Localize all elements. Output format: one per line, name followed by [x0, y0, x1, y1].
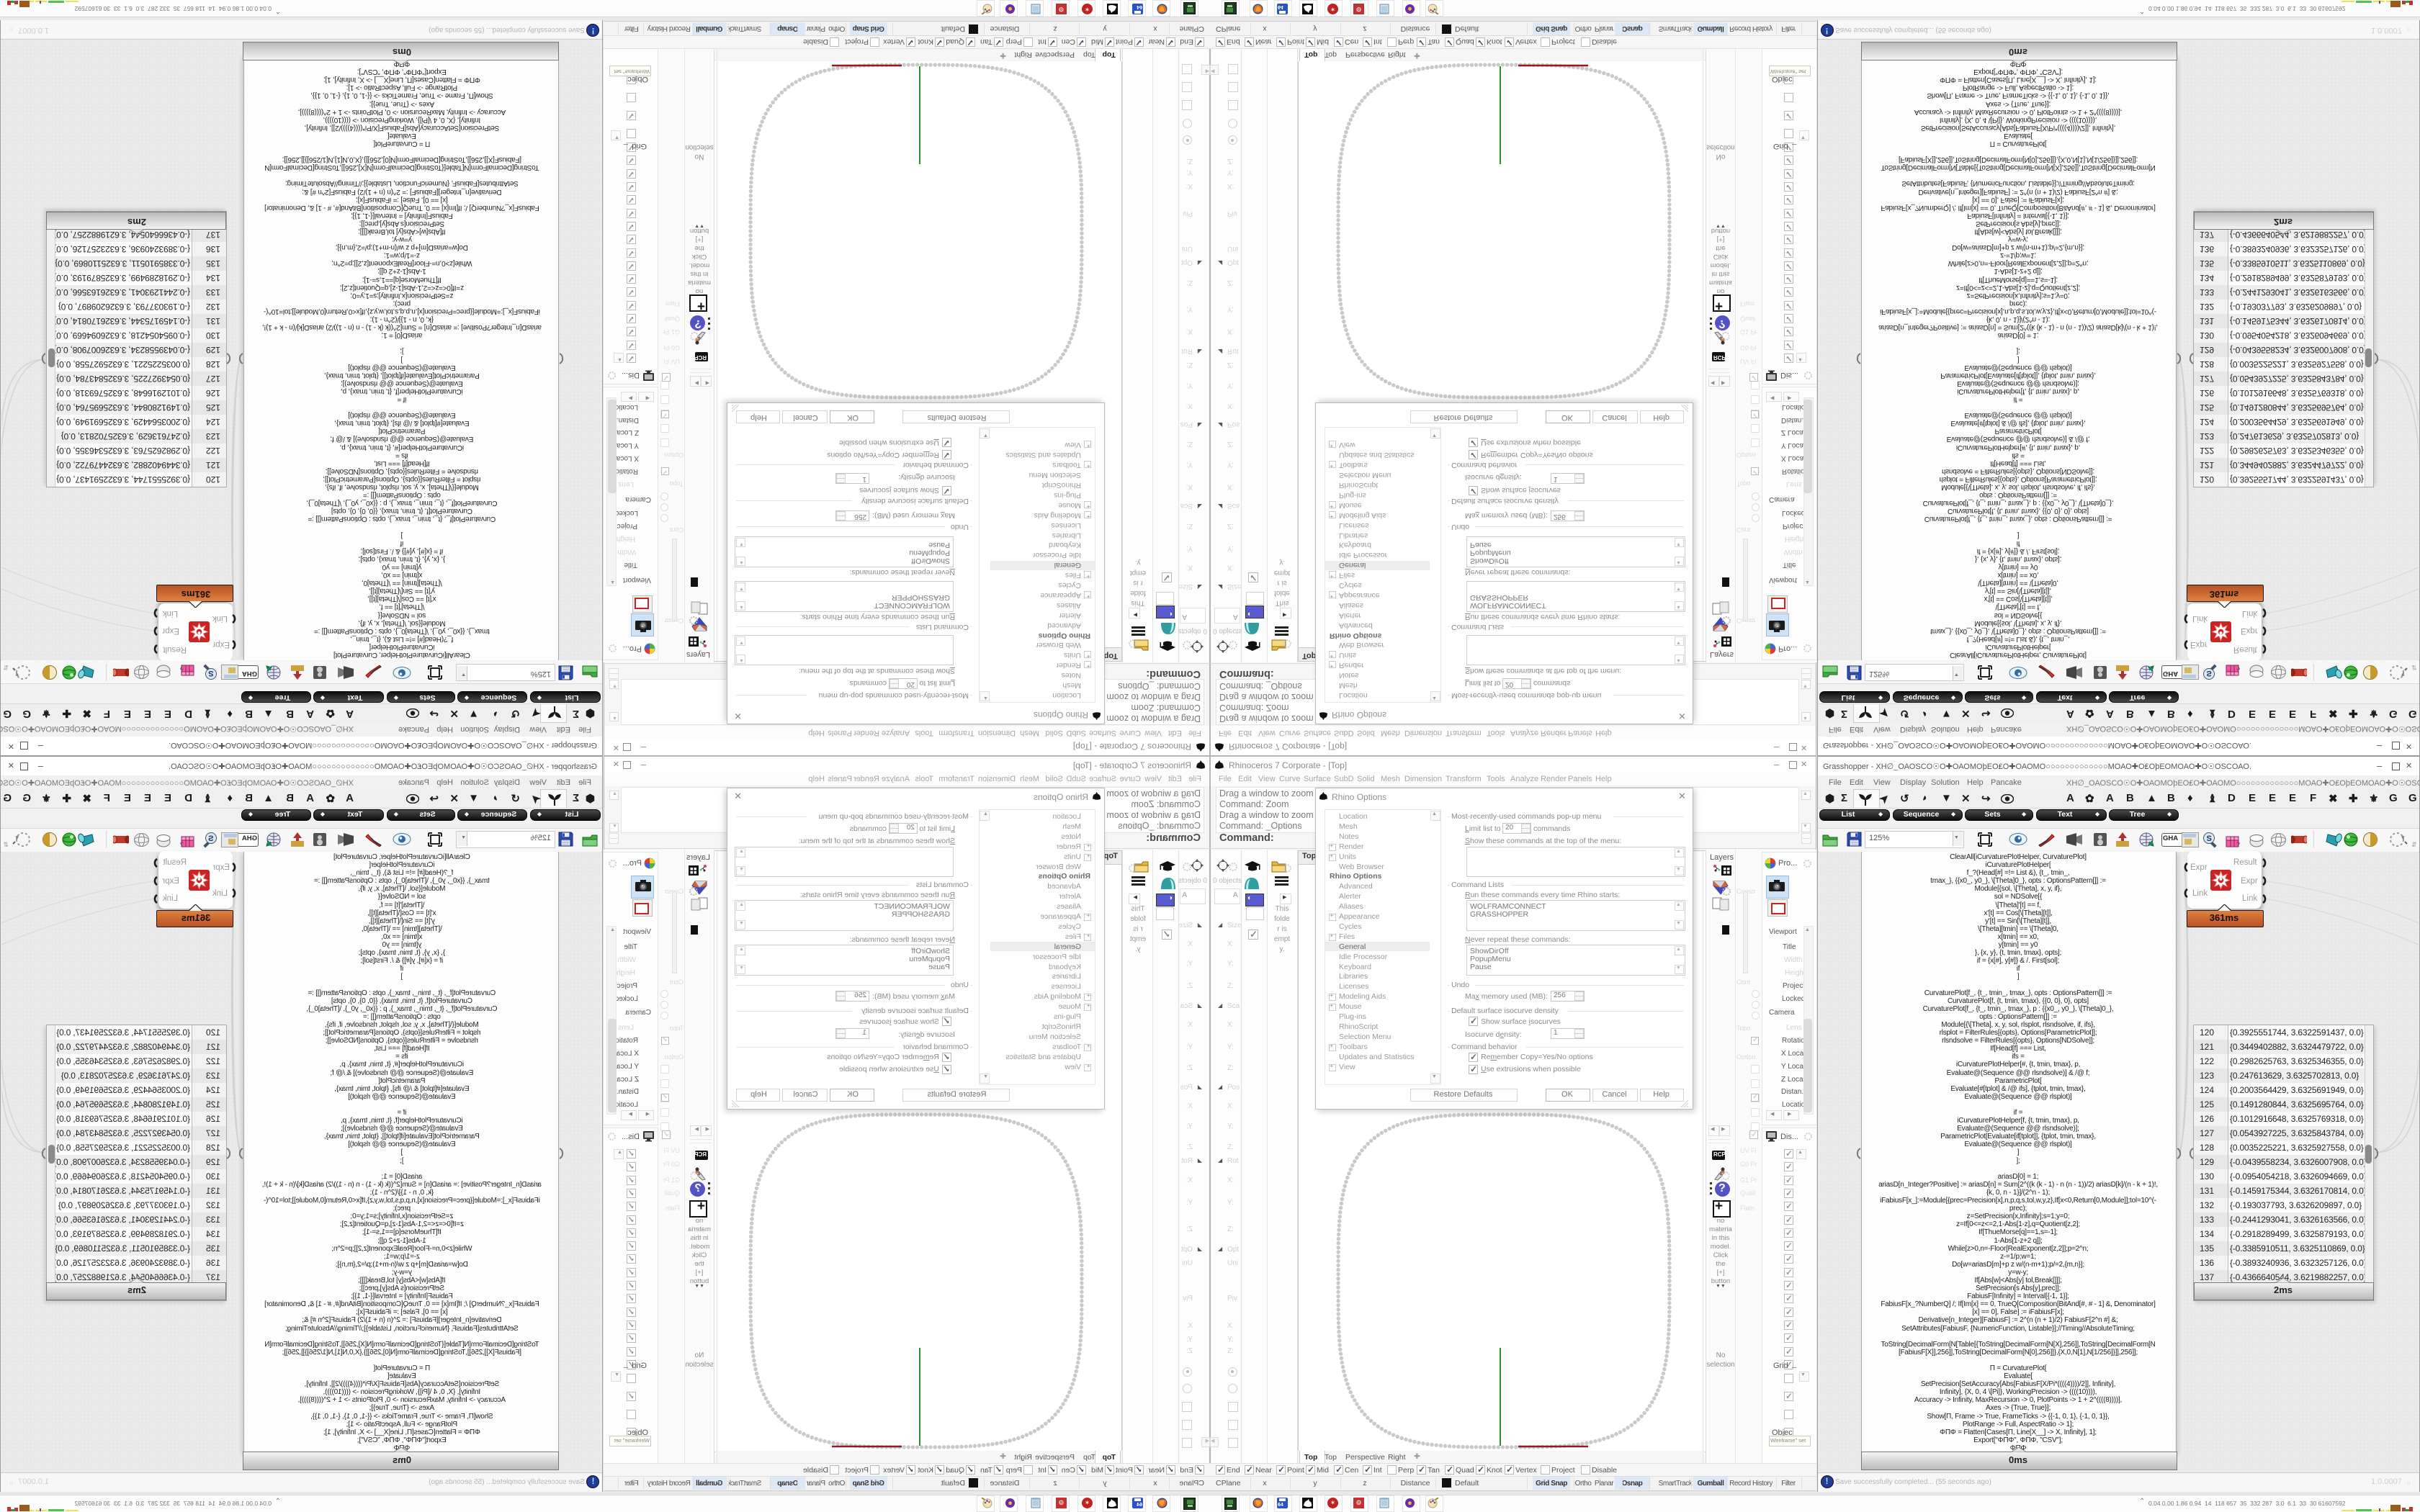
svg-text:?: ?: [2236, 841, 2240, 848]
svg-text:S: S: [2207, 834, 2212, 843]
svg-text:?: ?: [180, 841, 184, 848]
svg-text:S: S: [2207, 669, 2212, 678]
svg-text:?: ?: [180, 664, 184, 671]
svg-text:S: S: [208, 834, 213, 843]
svg-text:S: S: [208, 669, 213, 678]
svg-text:?: ?: [2236, 664, 2240, 671]
